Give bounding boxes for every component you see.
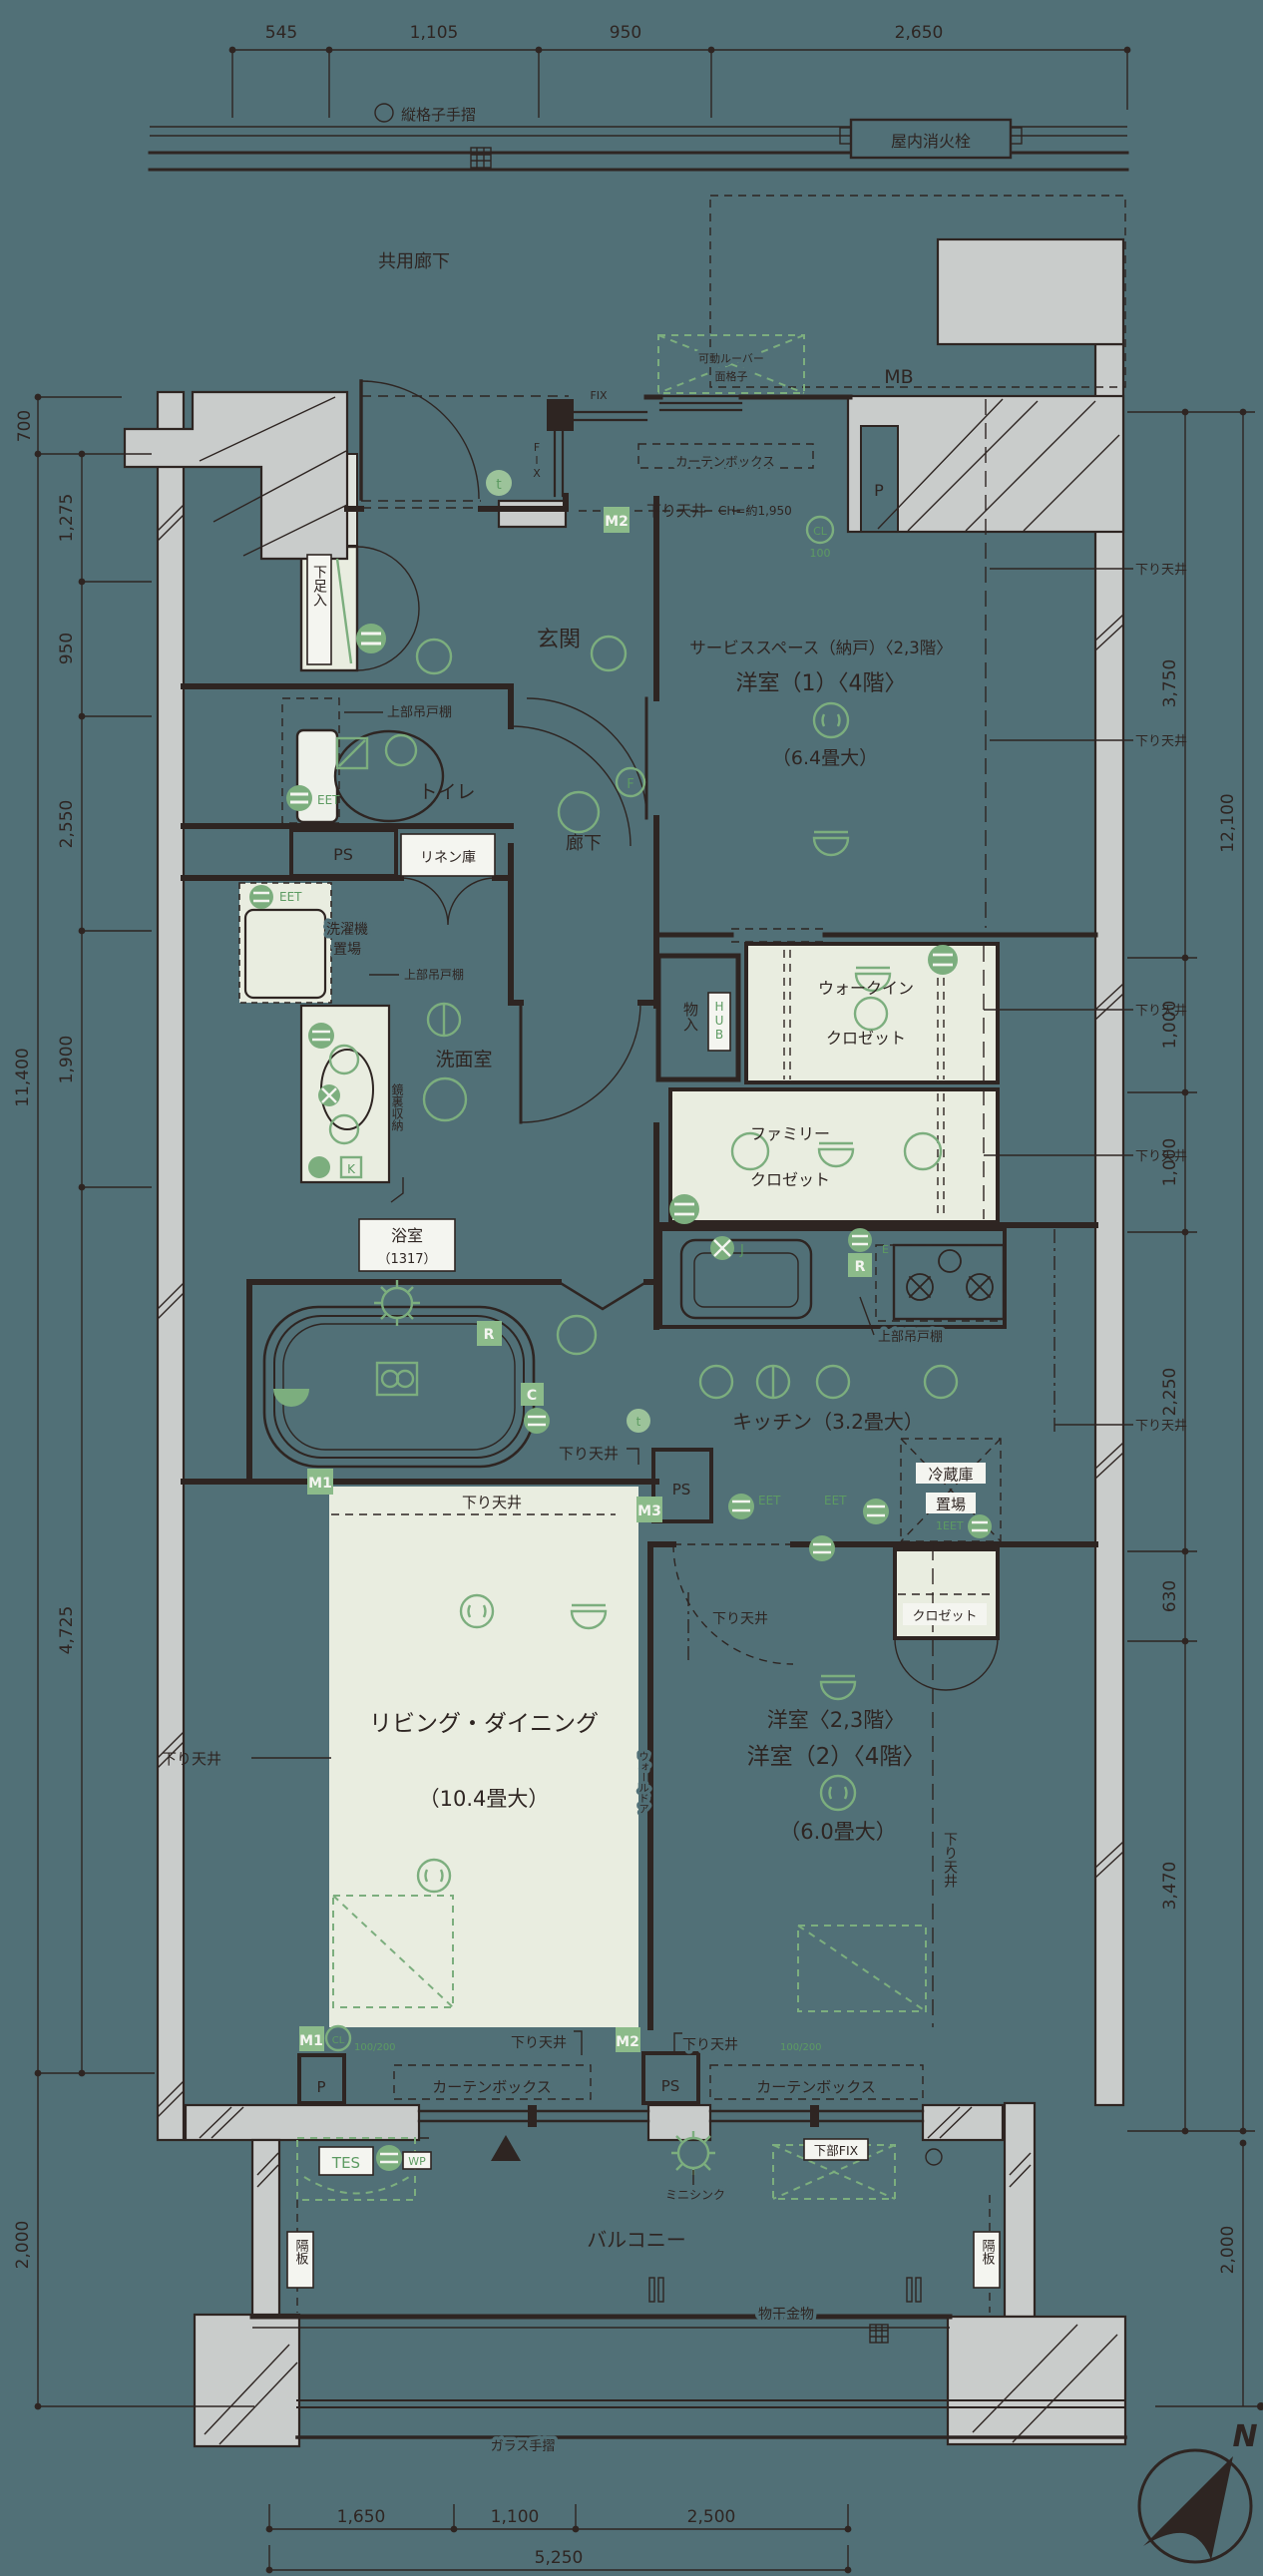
service-room-line2: 洋室（1）〈4階〉 <box>736 671 907 696</box>
m1-bottom: M1 <box>299 2033 323 2049</box>
family-closet-floor <box>670 1089 998 1222</box>
r-icon-bath: R <box>484 1327 495 1343</box>
yoshitsu2-size: （6.0畳大） <box>779 1820 896 1844</box>
yoshitsu2-line1: 洋室〈2,3階〉 <box>767 1708 905 1732</box>
tsuridana-toilet: 上部吊戸棚 <box>387 705 452 720</box>
fix-label-v: FIX <box>531 441 544 480</box>
north-arrow-needle <box>1143 2456 1233 2560</box>
family-closet-line1: ファミリー <box>750 1124 830 1143</box>
washer-label-2: 置場 <box>333 942 361 958</box>
kitchen-sink-inner <box>694 1253 798 1307</box>
dim-bottom-total: 5,250 <box>535 2548 584 2568</box>
dim-left-700: 700 <box>15 410 35 442</box>
r-icon-kitchen: R <box>855 1259 866 1275</box>
dim-left-2550: 2,550 <box>57 800 77 849</box>
kagamiura-label: 鏡裏収納 <box>390 1082 404 1131</box>
cl-top-100: 100 <box>810 547 831 560</box>
tes-label: TES <box>331 2154 360 2172</box>
yoshitsu2-line2: 洋室（2）〈4階〉 <box>747 1744 926 1770</box>
balcony-label: バルコニー <box>587 2228 686 2252</box>
dim-left-4725: 4,725 <box>57 1606 77 1655</box>
cl-100-200-right: 100/200 <box>780 2042 822 2053</box>
sagari-right-1: 下り天井 <box>1135 563 1187 578</box>
sagari-yoshitsu2: 下り天井 <box>712 1611 768 1627</box>
corridor-block <box>938 239 1123 344</box>
mini-sink-label: ミニシンク <box>665 2188 725 2202</box>
m1-ld: M1 <box>308 1476 332 1492</box>
monoire-label: 物入 <box>681 1002 699 1032</box>
right-dimension-chain: 3,750 1,000 1,000 2,250 630 3,470 12,100… <box>1127 409 1263 2410</box>
dim-top-950: 950 <box>610 23 641 43</box>
c-icon-bath: C <box>527 1388 537 1404</box>
living-dining-label: リビング・ダイニング <box>369 1711 599 1737</box>
kakuita-left: 隔板 <box>293 2239 309 2266</box>
louver-label-1: 可動ルーバー <box>698 351 764 365</box>
balcony-column-left <box>195 2315 299 2446</box>
kakuita-right: 隔板 <box>980 2239 996 2266</box>
dim-right-3750: 3,750 <box>1160 659 1180 708</box>
dim-left-total: 11,400 <box>13 1048 33 1106</box>
dim-top-545: 545 <box>265 23 297 43</box>
eet-washer: EET <box>279 890 302 904</box>
sagari-bottom-right: 下り天井 <box>682 2037 738 2053</box>
fridge-label-2: 置場 <box>936 1496 966 1513</box>
balcony-right-partition-wall <box>1005 2103 1035 2317</box>
eet-toilet: EET <box>317 793 340 807</box>
bottom-wall-left <box>186 2105 419 2140</box>
dim-bottom-2500: 2,500 <box>687 2507 736 2527</box>
family-closet-line2: クロゼット <box>750 1170 830 1189</box>
t-icon-entry: t <box>496 477 502 493</box>
glass-rail-label: ガラス手摺 <box>491 2439 556 2454</box>
bath-size-label: （1317） <box>377 1252 436 1267</box>
dim-right-2250: 2,250 <box>1160 1368 1180 1417</box>
t-icon-bath: t <box>636 1415 641 1429</box>
ch-note: CH=約1,950 <box>718 503 792 518</box>
bottom-wall-mid <box>648 2105 710 2140</box>
curtain-box-top-label: カーテンボックス <box>675 454 775 469</box>
senmen-label: 洗面室 <box>435 1049 492 1071</box>
ps2-label: PS <box>672 1481 691 1499</box>
wp-label: WP <box>408 2155 426 2168</box>
dim-right-1000b: 1,000 <box>1160 1138 1180 1187</box>
curtain-box-ld-label: カーテンボックス <box>432 2078 552 2096</box>
pipe-space-top-label: P <box>874 481 884 500</box>
sagari-yoshitsu2-vert: 下り天井 <box>942 1832 958 1889</box>
living-dining-size: （10.4畳大） <box>419 1787 550 1811</box>
wic-line2: クロゼット <box>826 1029 906 1048</box>
bath-label: 浴室 <box>391 1226 423 1245</box>
cl-100-200-left: 100/200 <box>354 2042 396 2053</box>
e-icon-kitchen: E <box>882 1243 889 1256</box>
ps1-label: PS <box>333 845 353 864</box>
living-dining-floor <box>329 1487 638 2027</box>
sagari-right-5: 下り天井 <box>1135 1419 1187 1434</box>
service-room-size: （6.4畳大） <box>772 747 878 769</box>
dim-left-1275: 1,275 <box>57 494 77 543</box>
genkan-label: 玄関 <box>537 628 581 652</box>
handrail-symbol-icon <box>375 104 393 122</box>
tsuridana-washer: 上部吊戸棚 <box>404 967 464 982</box>
toilet-bowl <box>335 731 443 821</box>
concrete-structure <box>125 239 1125 2446</box>
sagari-right-2: 下り天井 <box>1135 734 1187 749</box>
floor-plan-page: 屋内消火栓 縦格子手摺 共用廊下 MB P 545 1,105 950 2,65… <box>0 0 1263 2576</box>
entry-direction-triangle <box>491 2135 521 2161</box>
hall-label: 廊下 <box>566 833 602 854</box>
handrail-label: 縦格子手摺 <box>401 106 476 124</box>
m2-bottom: M2 <box>616 2034 639 2050</box>
entry-wall-stub <box>499 501 566 527</box>
ps3-label: PS <box>661 2077 680 2095</box>
j-icon: J <box>739 1243 744 1258</box>
wall-door-label: ウォールドア <box>637 1751 649 1814</box>
k-icon: K <box>347 1162 356 1176</box>
stove-burners <box>907 1250 993 1300</box>
bottom-dimension-chain: 1,650 1,100 2,500 5,250 <box>266 2504 852 2573</box>
corridor-grate-icon <box>471 148 491 168</box>
kitchen-label: キッチン（3.2畳大） <box>732 1410 924 1434</box>
kabu-fix-label: 下部FIX <box>814 2143 859 2158</box>
m3-label: M3 <box>637 1503 661 1519</box>
p-bottom-label: P <box>316 2078 325 2096</box>
floor-plan-drawing: 屋内消火栓 縦格子手摺 共用廊下 MB P 545 1,105 950 2,65… <box>0 0 1263 2576</box>
sagari-ch: 下り天井 <box>646 502 706 520</box>
dim-right-3470: 3,470 <box>1160 1862 1180 1911</box>
dim-top-2650: 2,650 <box>895 23 944 43</box>
common-corridor-label: 共用廊下 <box>378 251 450 272</box>
sagari-bottom-left: 下り天井 <box>511 2035 567 2051</box>
eet-kitchen-2: EET <box>824 1494 847 1507</box>
wic-line1: ウォークイン <box>818 979 914 998</box>
fix-corner-post <box>547 399 574 431</box>
bottom-wall-right <box>923 2105 1003 2140</box>
stove <box>894 1245 1004 1319</box>
sagari-ld-top: 下り天井 <box>462 1494 522 1511</box>
tsuridana-kitchen: 上部吊戸棚 <box>878 1330 943 1345</box>
north-label: N <box>1232 2419 1257 2454</box>
fridge-label-1: 冷蔵庫 <box>928 1466 973 1484</box>
fire-hydrant-label: 屋内消火栓 <box>891 132 971 151</box>
monohoshi-label: 物干金物 <box>758 2307 814 2323</box>
dim-left-1900: 1,900 <box>57 1036 77 1084</box>
balcony-column-right <box>948 2317 1125 2444</box>
f-icon-hall: F <box>627 777 633 792</box>
left-wall <box>158 392 184 2140</box>
sagari-left-margin: 下り天井 <box>162 1750 221 1768</box>
closet2-label: クロゼット <box>912 1609 977 1624</box>
m2-top: M2 <box>605 514 629 530</box>
dim-left-950: 950 <box>57 633 77 664</box>
dim-bottom-1100: 1,100 <box>491 2507 540 2527</box>
curtain-box-y2-label: カーテンボックス <box>756 2078 876 2096</box>
hub-label: HUB <box>712 1000 726 1042</box>
dim-right-630: 630 <box>1160 1580 1180 1612</box>
getabako-label: 下足入 <box>311 565 327 607</box>
washer-label-1: 洗濯機 <box>326 922 368 938</box>
service-room-line1: サービススペース（納戸）〈2,3階〉 <box>689 639 953 657</box>
eet1-fridge: 1EET <box>936 1519 964 1532</box>
fix-label-h: FIX <box>590 389 608 402</box>
dim-left-balcony: 2,000 <box>13 2221 33 2270</box>
eet-kitchen-1: EET <box>758 1494 781 1507</box>
top-dimension-chain: 545 1,105 950 2,650 <box>229 23 1131 118</box>
dim-top-1105: 1,105 <box>410 23 459 43</box>
dim-right-balcony: 2,000 <box>1218 2226 1238 2275</box>
cl-bottom: CL <box>332 2035 345 2046</box>
toilet-label: トイレ <box>418 781 475 803</box>
right-wall <box>1095 344 1123 2105</box>
cl-top: CL <box>813 525 828 538</box>
mb-label: MB <box>884 366 913 388</box>
dim-bottom-1650: 1,650 <box>337 2507 386 2527</box>
pipe-space-notch <box>861 426 898 532</box>
linen-label: リネン庫 <box>420 849 476 866</box>
dim-right-1000a: 1,000 <box>1160 1001 1180 1050</box>
north-arrow: N <box>1139 2419 1258 2562</box>
louver-label-2: 面格子 <box>715 369 748 383</box>
dim-right-total: 12,100 <box>1218 793 1238 852</box>
sagari-kitchen-edge: 下り天井 <box>559 1445 619 1463</box>
